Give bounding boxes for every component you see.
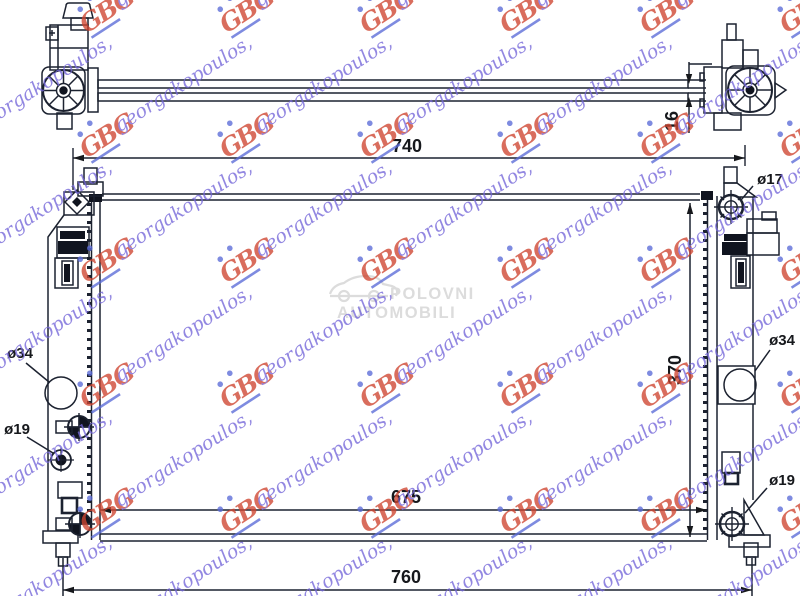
left-inlet-connector	[57, 227, 89, 258]
left-tank	[43, 168, 103, 566]
right-tank	[714, 167, 779, 565]
polovni-line2: AUTOMOBILI	[337, 304, 456, 322]
diameter-labels: ø17 ø34 ø34 ø19 ø19	[4, 171, 796, 513]
label-drain-right: ø19	[769, 472, 795, 489]
label-hole-top-right: ø17	[757, 171, 783, 188]
spoked-wheel-left-icon	[43, 70, 84, 111]
top-view-assembly-left	[42, 3, 98, 129]
label-hole-left: ø34	[7, 345, 34, 362]
dim-740-label: 740	[392, 136, 422, 156]
radiator-technical-drawing-page: POLOVNI AUTOMOBILI	[0, 0, 800, 596]
hole-left-34	[45, 377, 77, 409]
hole-top-right-17	[714, 190, 748, 224]
polovni-line1: POLOVNI	[390, 285, 475, 303]
dim-675: 675	[100, 487, 707, 513]
dim-16-label: 16	[662, 111, 682, 131]
crossbar	[98, 80, 706, 101]
label-hole-right: ø34	[769, 332, 796, 349]
top-view: 16	[42, 3, 786, 133]
car-icon	[330, 276, 397, 301]
dim-760: 760	[63, 558, 752, 596]
dim-675-label: 675	[391, 487, 421, 507]
top-view-assembly-right	[700, 24, 786, 130]
radiator-diagram: POLOVNI AUTOMOBILI	[0, 0, 800, 596]
label-drain-left: ø19	[4, 421, 30, 438]
front-view: ø17 ø34 ø34 ø19 ø19 370	[4, 167, 796, 596]
hole-right-34	[724, 369, 756, 401]
polovni-watermark: POLOVNI AUTOMOBILI	[330, 276, 475, 322]
dim-370: 370	[665, 203, 693, 537]
dim-760-label: 760	[391, 567, 421, 587]
dim-370-label: 370	[665, 355, 685, 385]
spoked-wheel-right-icon	[728, 68, 772, 112]
dim-740: 740	[73, 136, 745, 190]
